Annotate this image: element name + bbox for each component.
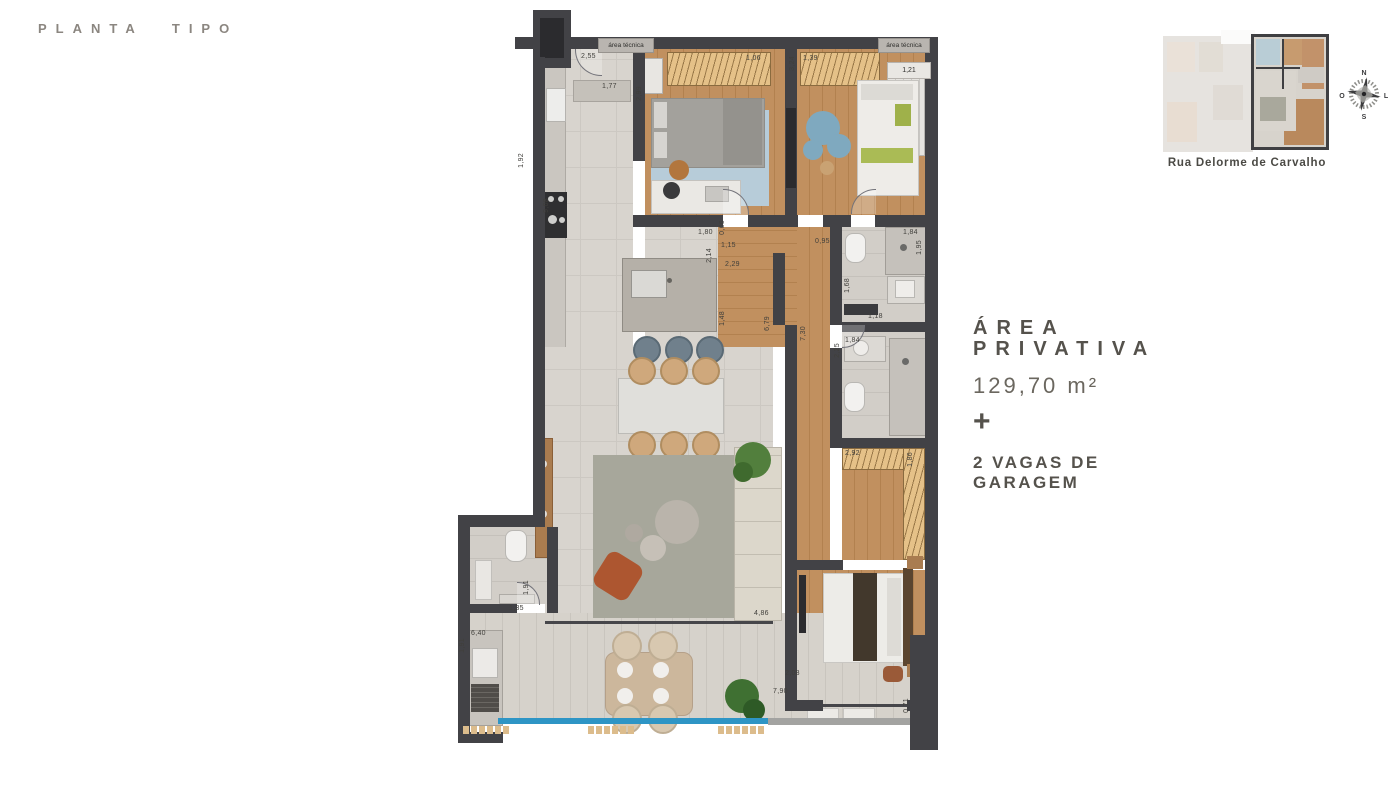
- dim-label: 4,86: [754, 610, 769, 617]
- bedroom2-tree-rug: [827, 134, 851, 158]
- dim-label: 1,15: [721, 242, 736, 249]
- desk-chair: [663, 182, 680, 199]
- dim-label: 1,35: [509, 605, 524, 612]
- keyplan-faded-room: [1167, 42, 1195, 72]
- dim-label: 0,95: [815, 238, 830, 245]
- dim-label: 1,84: [903, 229, 918, 236]
- bedroom2-green-pillow: [895, 104, 911, 126]
- place-setting: [617, 688, 633, 704]
- compass-north-label: N: [1361, 70, 1366, 77]
- suite-pillows: [887, 578, 901, 656]
- compass-icon: N L S O: [1338, 68, 1390, 120]
- bedroom2-pillow: [861, 84, 913, 100]
- bedroom1-pillow: [654, 132, 667, 158]
- dim-label: 1,68: [844, 278, 851, 293]
- bedroom1-pillow: [654, 102, 667, 128]
- dim-label: 1,48: [719, 311, 726, 326]
- grill: [471, 684, 499, 712]
- info-panel: ÁREA PRIVATIVA 129,70 m² + 2 VAGAS DE GA…: [973, 318, 1233, 493]
- keyplan-wall-line: [1282, 39, 1284, 89]
- garage-label-line2: GARAGEM: [973, 473, 1233, 493]
- keyplan-core-notch: [1221, 30, 1255, 44]
- bedroom2-side-table: [820, 161, 834, 175]
- private-area-value: 129,70 m²: [973, 373, 1233, 399]
- planter: [718, 726, 766, 734]
- shower-head: [902, 358, 909, 365]
- island-sink: [631, 270, 667, 298]
- outdoor-chair: [648, 631, 678, 661]
- dining-chair: [660, 357, 688, 385]
- dim-label: 2,08: [785, 670, 800, 677]
- keyplan-thumbnail: [1163, 30, 1331, 152]
- dim-label: 1,91: [459, 638, 466, 653]
- wall: [875, 215, 928, 227]
- dim-label: 0,66: [719, 220, 726, 235]
- island-faucet: [667, 278, 672, 283]
- wall: [547, 527, 558, 613]
- dim-label: 1,92: [518, 153, 525, 168]
- plant: [733, 462, 753, 482]
- keyplan-room-bath: [1298, 67, 1324, 83]
- dim-label: 1,18: [868, 313, 883, 320]
- place-setting: [653, 688, 669, 704]
- garage-label-line1: 2 VAGAS DE: [973, 453, 1233, 473]
- dim-label: 2,25: [834, 343, 841, 358]
- keyplan-highlighted-unit: [1251, 34, 1329, 150]
- toilet: [845, 233, 866, 263]
- wall: [533, 57, 545, 527]
- dim-label: 7,90: [773, 688, 788, 695]
- wall: [823, 215, 851, 227]
- suite-bed-runner: [853, 573, 877, 661]
- plus-icon: +: [973, 407, 1233, 437]
- nightstand: [907, 556, 923, 569]
- shower: [889, 338, 927, 436]
- dim-label: 1,84: [845, 337, 860, 344]
- suite-armchair: [883, 666, 903, 682]
- wall: [515, 37, 938, 49]
- balcony-parapet: [768, 718, 910, 725]
- shaft-core: [540, 18, 564, 58]
- dining-chair: [692, 357, 720, 385]
- dim-label: 0,71: [903, 698, 910, 713]
- wall: [633, 215, 723, 227]
- wall: [925, 37, 938, 700]
- dim-label: 1,39: [803, 55, 818, 62]
- grill-sink: [472, 648, 498, 678]
- page-title: PLANTA TIPO: [38, 21, 238, 36]
- wall: [797, 560, 843, 570]
- planter: [588, 726, 636, 734]
- corridor-floor: [797, 227, 830, 570]
- tech-area-value: 1,21: [887, 62, 931, 79]
- keyplan-room-bedroom: [1282, 39, 1302, 65]
- keyplan-wall-line: [1256, 67, 1300, 69]
- wall: [830, 227, 842, 325]
- place-setting: [653, 662, 669, 678]
- wall: [633, 49, 645, 161]
- wall: [910, 635, 938, 750]
- coffee-table: [640, 535, 666, 561]
- wall: [773, 253, 785, 325]
- media-panel: [786, 108, 796, 188]
- dim-label: 6,40: [471, 630, 486, 637]
- wall: [830, 438, 925, 448]
- bedroom2-tree-rug: [803, 140, 823, 160]
- dim-label: 2,92: [845, 450, 860, 457]
- dim-label: 3,24: [789, 56, 796, 71]
- wall: [458, 515, 545, 527]
- planter: [463, 726, 511, 734]
- lavabo-bench: [475, 560, 492, 600]
- bedroom1-blanket: [723, 99, 762, 165]
- sliding-door-glass: [823, 704, 907, 707]
- private-area-label-line1: ÁREA: [973, 318, 1233, 339]
- dining-table: [618, 378, 724, 434]
- outdoor-chair: [612, 631, 642, 661]
- dim-label: 9,08: [543, 198, 550, 213]
- keyplan-faded-room: [1167, 102, 1197, 142]
- dim-label: 1,77: [602, 83, 617, 90]
- toilet: [505, 530, 527, 562]
- bedroom1-pouf: [669, 160, 689, 180]
- compass-east-label: L: [1384, 93, 1389, 100]
- compass-south-label: S: [1362, 114, 1367, 120]
- dim-label: 1,95: [916, 240, 923, 255]
- fridge: [546, 88, 566, 122]
- bedroom2-green-throw: [861, 148, 913, 163]
- dim-label: 2,99: [636, 86, 643, 101]
- tech-area-label: área técnica: [598, 38, 654, 53]
- kitchen-counter: [545, 238, 566, 347]
- wall: [458, 515, 470, 743]
- wall: [785, 700, 823, 711]
- tech-area-label: área técnica: [878, 38, 930, 53]
- floor-plan: área técnica área técnica 1,21 2,55 1,77…: [455, 10, 943, 755]
- keyplan-room-bedroom: [1256, 39, 1280, 65]
- dining-chair: [628, 357, 656, 385]
- private-area-label-line2: PRIVATIVA: [973, 339, 1233, 360]
- dim-label: 1,86: [907, 452, 914, 467]
- wall: [785, 325, 797, 710]
- dim-label: 7,30: [800, 326, 807, 341]
- stove-burner: [559, 217, 565, 223]
- suite-tv-panel: [799, 575, 806, 633]
- toilet: [844, 382, 865, 412]
- place-setting: [617, 662, 633, 678]
- keyplan-faded-room: [1213, 85, 1243, 120]
- dim-label: 1,91: [523, 580, 530, 595]
- dim-label: 2,29: [725, 261, 740, 268]
- balcony-railing: [498, 718, 768, 724]
- shower-head: [900, 244, 907, 251]
- keyplan-living-rug: [1260, 97, 1286, 121]
- dim-label: 1,80: [698, 229, 713, 236]
- coffee-table: [625, 524, 643, 542]
- stove-burner: [548, 215, 557, 224]
- compass-west-label: O: [1339, 93, 1345, 100]
- dim-label: 6,79: [764, 316, 771, 331]
- sliding-door-glass: [545, 621, 773, 624]
- kitchen-counter: [545, 57, 566, 192]
- dim-label: 2,55: [581, 53, 596, 60]
- keyplan-faded-room: [1199, 42, 1223, 72]
- wall: [830, 348, 842, 440]
- dim-label: 1,06: [746, 55, 761, 62]
- street-caption: Rua Delorme de Carvalho: [1147, 157, 1347, 169]
- vanity-basin: [895, 280, 915, 298]
- stove-burner: [558, 196, 564, 202]
- dim-label: 2,14: [706, 248, 713, 263]
